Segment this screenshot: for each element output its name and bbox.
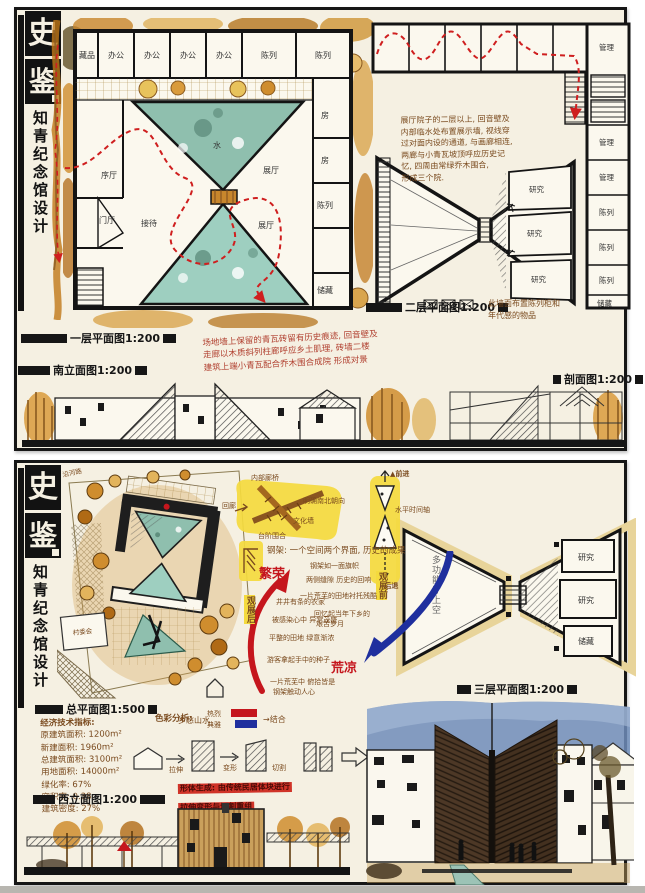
logo-char-shi: 史 (25, 465, 61, 510)
color-analysis-item: 乡愁山水 (178, 715, 210, 727)
room-label: 房 (321, 155, 329, 165)
blue-arrow-note: 艰苦岁月 (316, 619, 344, 629)
logo-char-shi-text: 史 (28, 470, 58, 505)
timeline-axis-label: 水平时间轴 (395, 505, 430, 515)
south-elevation-label: 南立面图1:200 (18, 362, 147, 378)
diagram-label: 回廊 (222, 501, 236, 511)
prosperity-label: 繁荣 (259, 563, 285, 582)
massing-diagrams (128, 735, 378, 779)
room-label: 陈列 (261, 50, 277, 60)
after-visit-label: 观展后 (244, 595, 255, 624)
indicator-line: 用地面积: 14000m² (41, 766, 123, 780)
color-analysis-result: →结合 (263, 714, 286, 726)
room-label: 储藏 (578, 636, 594, 646)
room-label: 展厅 (258, 221, 274, 230)
room-label: 办公 (180, 50, 196, 60)
room-label: 陈列 (599, 275, 614, 285)
title-vertical-bar (18, 15, 24, 311)
plan2-label-text: 二层平面图1:200 (405, 299, 495, 315)
room-label: 管理 (599, 137, 614, 147)
room-label: 储藏 (597, 298, 612, 308)
room-label: 研究 (531, 274, 546, 284)
room-label: 房 (321, 110, 329, 120)
site-road-label: 沿河路 (62, 466, 83, 479)
red-arrow-note: 游客拿起手中的种子 (267, 655, 330, 665)
south-elevation-drawing (20, 378, 627, 452)
room-label: 陈列 (599, 242, 614, 252)
site-plan-label: 总平面图1:500 (35, 701, 157, 717)
room-label: 陈列 (317, 200, 333, 210)
board-title-vertical: 知青纪念馆设计 (30, 110, 51, 236)
site-plaza (112, 607, 200, 665)
logo-char-jian: 鉴 (25, 513, 61, 558)
timeline-forward-label: ▲前进 (390, 469, 409, 479)
indicator-line: 原建筑面积: 1200m² (40, 729, 122, 743)
blue-arrow-note: 钢架如一面旗帜 (310, 561, 359, 571)
scanned-presentation-boards: { "colors": { "paper": "#f5f0e2", "ink":… (0, 0, 645, 893)
plan2-label: 二层平面图1:200 (366, 299, 508, 315)
perspective-drawing (362, 695, 634, 885)
blue-arrow-note: 两侧缝隙 历史的回响 (306, 575, 371, 585)
blue-arrow-note: 回忆起当年下乡的 (314, 609, 370, 619)
note-line: 年代感的物品 (488, 310, 560, 322)
color-red-label: 热烈 (207, 709, 221, 719)
concept-diagram-bridge (227, 471, 357, 551)
scan-edge-shadow (0, 886, 645, 893)
title-vertical-bar (18, 468, 24, 708)
room-label: 研究 (529, 184, 544, 194)
massing-step-label: 切割 (272, 763, 286, 773)
room-label: 办公 (144, 50, 160, 60)
logo-char-jian-text: 鉴 (29, 519, 57, 552)
room-label: 管理 (599, 42, 614, 52)
room-label: 研究 (578, 595, 594, 605)
diagram-label: 内部廊桥 (251, 473, 279, 483)
room-label: 管理 (599, 172, 614, 182)
red-arrow-note: 钢架触动人心 (273, 687, 315, 697)
plan2-side-note: 此墙面布置陈列柜和 年代感的物品 (488, 298, 560, 321)
board-top: 史 鉴 知青纪念馆设计 (14, 7, 627, 451)
room-label: 储藏 (317, 285, 333, 295)
massing-step-label: 变形 (223, 763, 237, 773)
room-label: 展厅 (263, 166, 279, 175)
room-label: 接待 (141, 218, 157, 228)
room-label: 藏品 (79, 50, 95, 60)
note-line: 此墙面布置陈列柜和 (488, 298, 560, 310)
room-label: 门厅 (99, 215, 115, 225)
red-arrow-note: 平整的田地 绿意渐浓 (269, 633, 334, 643)
plan1-label-text: 一层平面图1:200 (70, 330, 160, 346)
room-label: 陈列 (599, 207, 614, 217)
board-bottom: 史 鉴 知青纪念馆设计 (14, 460, 627, 885)
desolation-label: 荒凉 (331, 657, 357, 676)
room-label: 办公 (216, 50, 232, 60)
blue-swatch (235, 720, 257, 728)
room-label: 水 (213, 140, 221, 150)
site-building (108, 476, 223, 614)
plan1-red-note: 场地墙上保留的青瓦砖留有历史痕迹, 回音壁及 走廊以木质斜列柱廊呼应乡土肌理, … (202, 328, 379, 374)
note-line: 形体生成: 由传统民居体块进行 (178, 782, 292, 794)
room-label: 研究 (578, 552, 594, 562)
site-plan-label-text: 总平面图1:500 (66, 701, 145, 717)
before-visit-label: 观展前 (376, 571, 387, 600)
board-title-vertical: 知青纪念馆设计 (30, 564, 51, 690)
room-label: 序厅 (101, 170, 117, 180)
diagram-label: 台阶围合 (258, 531, 286, 541)
color-blue-label: 典雅 (207, 720, 221, 730)
note-line: 两廊与小青瓦坡顶呼应历史记 (401, 148, 513, 162)
plan2-note: 展厅院子的二层以上, 回音壁及 内部临水处布置展示墙, 视线穿 过对面内设的通道… (400, 113, 513, 185)
red-swatch (231, 709, 257, 717)
blue-arrow-note: 一片荒芜的田地衬托残酷 (300, 591, 377, 601)
red-arrow-note: 一片荒芜中 俯拾皆是 (270, 677, 335, 687)
diagram-label: 文化墙 (293, 516, 314, 526)
room-label: 研究 (527, 228, 542, 238)
note-line: 形成三个院. (401, 171, 513, 185)
first-floor-plan-drawing: 藏品 办公 办公 办公 办公 陈列 陈列 房 房 陈列 储藏 序厅 水 展厅 展… (63, 18, 373, 328)
room-label: 陈列 (315, 50, 331, 60)
west-elevation-drawing (22, 803, 352, 883)
room-label: 办公 (108, 50, 124, 60)
diagram-label: 明确南北朝向 (303, 496, 345, 506)
plan1-label: 一层平面图1:200 (21, 330, 176, 346)
massing-step-label: 拉伸 (169, 765, 183, 775)
south-elevation-label-text: 南立面图1:200 (53, 362, 132, 378)
